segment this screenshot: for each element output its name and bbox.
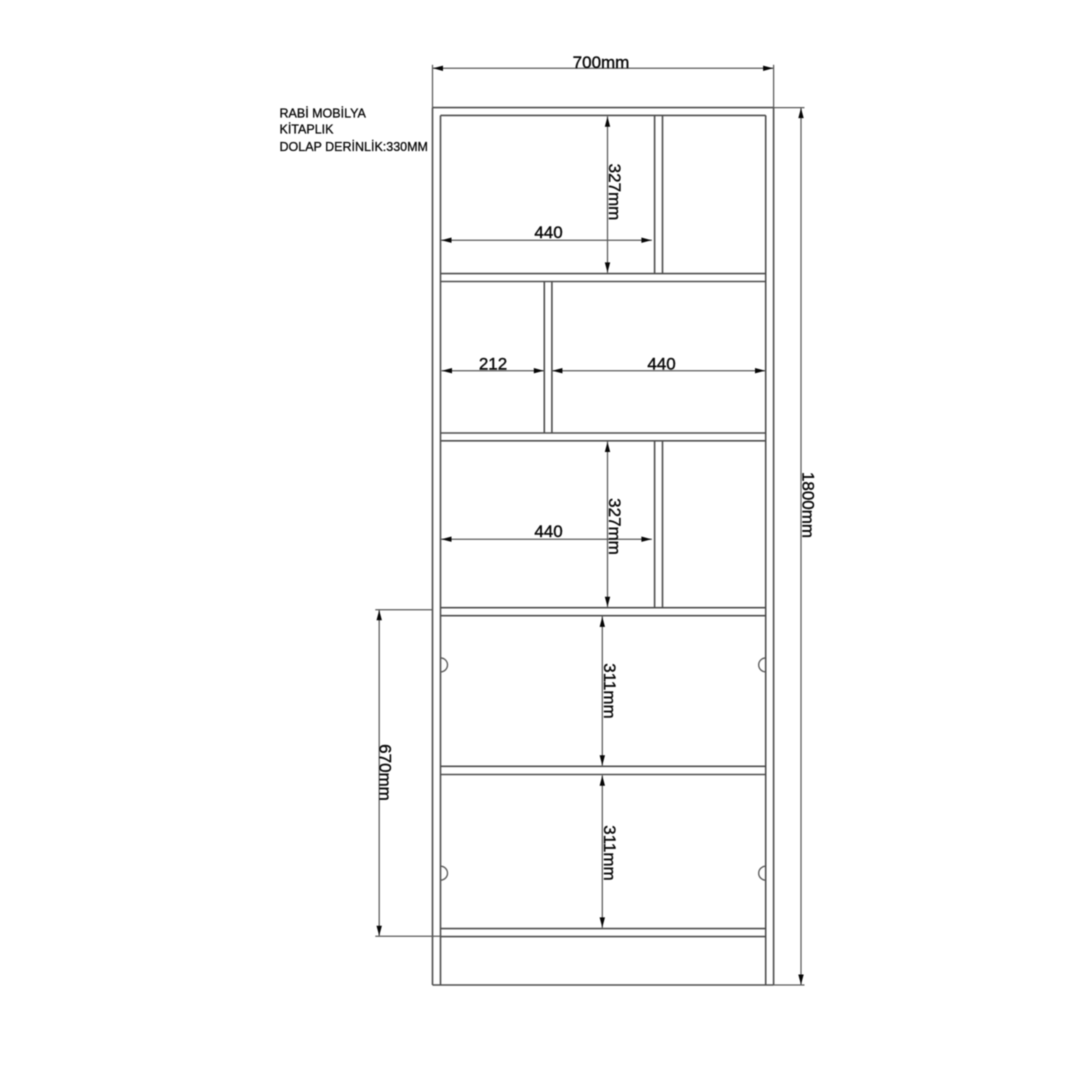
svg-text:311mm: 311mm <box>600 825 619 880</box>
svg-text:311mm: 311mm <box>600 663 619 718</box>
svg-text:440: 440 <box>534 223 562 242</box>
svg-text:DOLAP DERİNLİK:330MM: DOLAP DERİNLİK:330MM <box>280 140 428 154</box>
svg-text:KİTAPLIK: KİTAPLIK <box>280 123 335 137</box>
svg-text:212: 212 <box>479 355 507 374</box>
svg-text:RABİ MOBİLYA: RABİ MOBİLYA <box>280 107 367 121</box>
svg-text:440: 440 <box>647 355 675 374</box>
svg-text:327mm: 327mm <box>605 164 624 221</box>
svg-text:670mm: 670mm <box>376 744 395 801</box>
svg-text:700mm: 700mm <box>573 53 630 72</box>
svg-text:327mm: 327mm <box>605 498 624 555</box>
svg-text:1800mm: 1800mm <box>799 472 818 538</box>
svg-text:440: 440 <box>534 522 562 541</box>
